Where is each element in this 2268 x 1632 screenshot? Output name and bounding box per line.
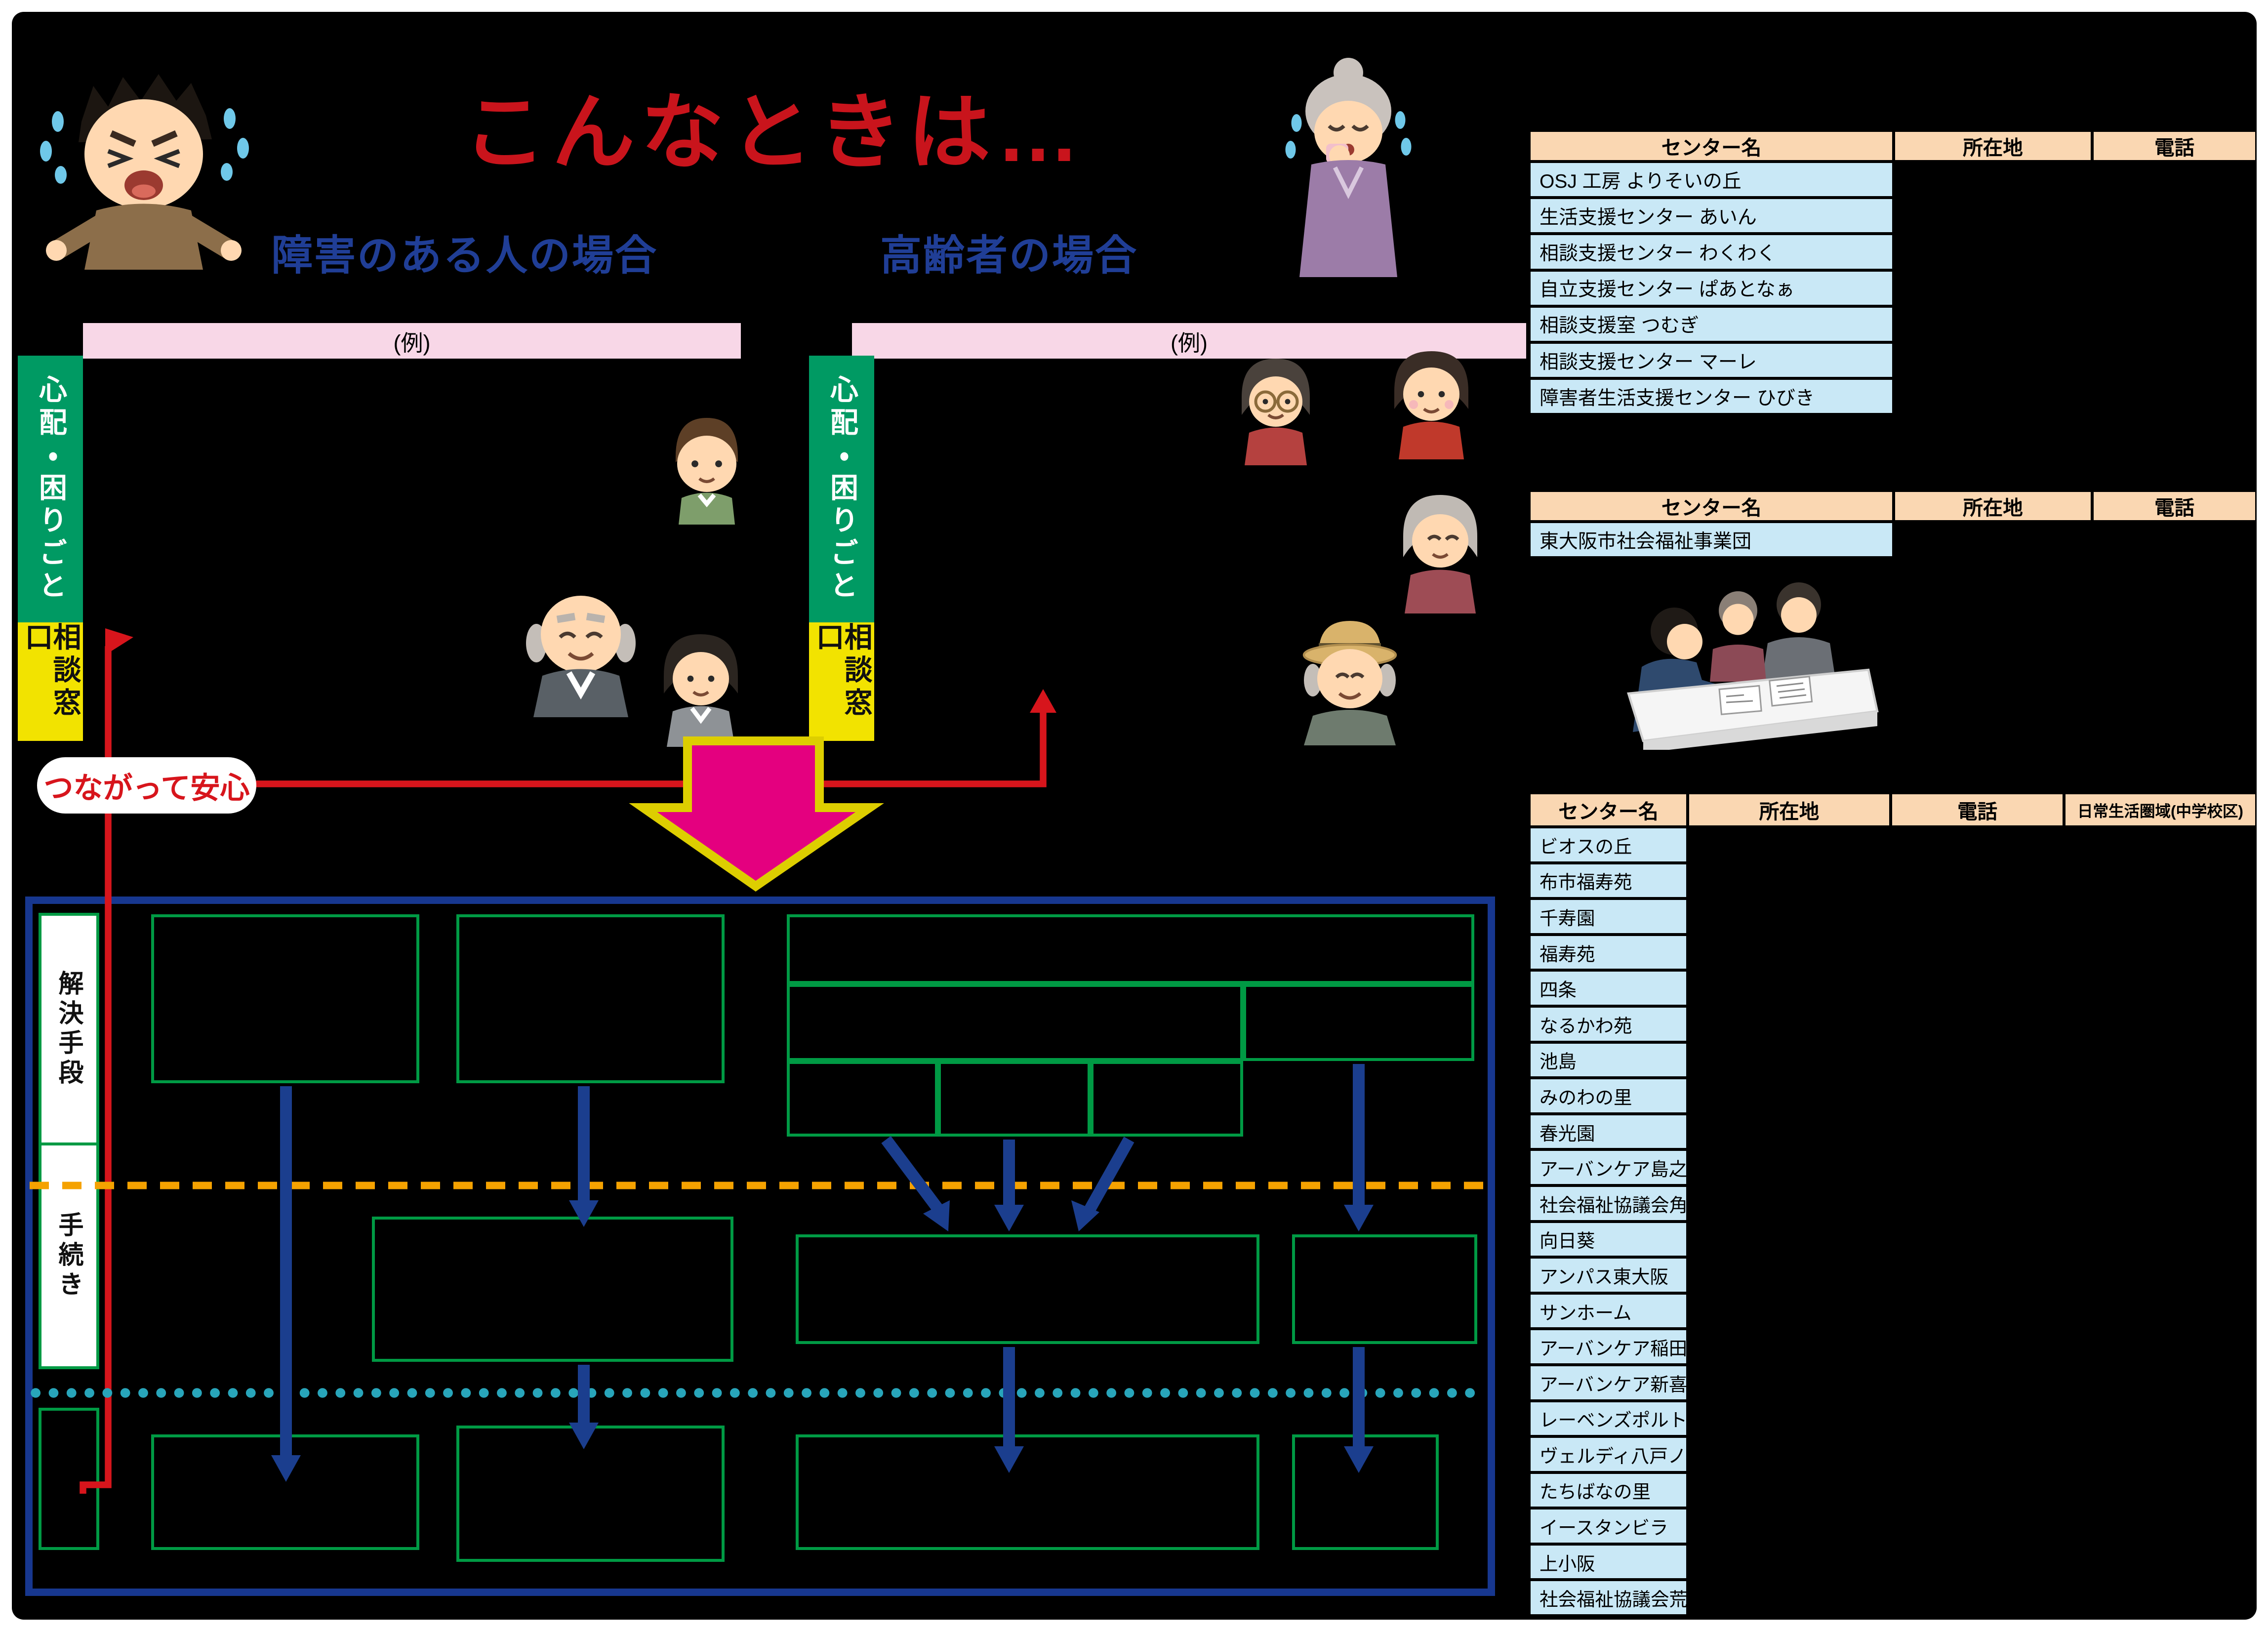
- table-row: サンホーム: [1529, 1293, 2257, 1329]
- table-row: 相談支援センター わくわく: [1529, 234, 2257, 270]
- center-name-cell: アーバンケア新喜多: [1529, 1365, 1688, 1401]
- flow-box-nested-cell-3: [1091, 1061, 1243, 1137]
- worry-bar-disabled: 心配・困りごと: [18, 356, 83, 622]
- table-row: 自立支援センター ぱあとなぁ: [1529, 270, 2257, 306]
- table-row: 相談支援センター マーレ: [1529, 342, 2257, 378]
- column-header: 所在地: [1894, 490, 2092, 522]
- column-header: センター名: [1529, 793, 1688, 827]
- table-row: 生活支援センター あいん: [1529, 198, 2257, 234]
- flow-box-r2b: [796, 1234, 1259, 1344]
- center-name-cell: 相談支援センター マーレ: [1529, 342, 1894, 378]
- center-name-cell: レーベンズポルト: [1529, 1401, 1688, 1437]
- column-header: 日常生活圏域(中学校区): [2064, 793, 2257, 827]
- table-row: なるかわ苑: [1529, 1006, 2257, 1042]
- flow-box-r3b: [456, 1426, 725, 1562]
- table-header-row: センター名所在地電話日常生活圏域(中学校区): [1529, 793, 2257, 827]
- column-header: 所在地: [1894, 130, 2092, 162]
- disability-centers-table: センター名所在地電話OSJ 工房 よりそいの丘生活支援センター あいん相談支援セ…: [1529, 130, 2257, 414]
- hat-elderly-man-illustration: [1292, 612, 1408, 745]
- column-header: 電話: [2092, 490, 2257, 522]
- table-row: 布市福寿苑: [1529, 863, 2257, 899]
- worry-bar-elderly: 心配・困りごと: [809, 356, 874, 622]
- center-name-cell: 千寿園: [1529, 898, 1688, 935]
- table-row: たちばなの里: [1529, 1472, 2257, 1509]
- center-name-cell: 四条: [1529, 970, 1688, 1006]
- flow-box-nested-cell-1: [787, 1061, 938, 1137]
- center-name-cell: 相談支援センター わくわく: [1529, 234, 1894, 270]
- center-name-cell: 障害者生活支援センター ひびき: [1529, 378, 1894, 414]
- column-header: センター名: [1529, 490, 1894, 522]
- table-row: アーバンケア新喜多: [1529, 1365, 2257, 1401]
- center-name-cell: アーバンケア島之内: [1529, 1149, 1688, 1185]
- welfare-organization-table: センター名所在地電話東大阪市社会福祉事業団: [1529, 490, 2257, 558]
- center-name-cell: たちばなの里: [1529, 1472, 1688, 1509]
- table-row: 池島: [1529, 1042, 2257, 1078]
- table-row: 向日葵: [1529, 1222, 2257, 1258]
- center-name-cell: みのわの里: [1529, 1078, 1688, 1114]
- center-name-cell: アンパス東大阪: [1529, 1257, 1688, 1293]
- column-header: センター名: [1529, 130, 1894, 162]
- column-header: 電話: [1891, 793, 2064, 827]
- center-name-cell: 相談支援室 つむぎ: [1529, 306, 1894, 342]
- elderly-centers-table: センター名所在地電話日常生活圏域(中学校区)ビオスの丘布市福寿苑千寿園福寿苑四条…: [1529, 793, 2257, 1616]
- center-name-cell: ヴェルディ八戸ノ里: [1529, 1436, 1688, 1472]
- procedure-label: 手続き: [56, 1212, 81, 1301]
- table-row: みのわの里: [1529, 1078, 2257, 1114]
- flow-box-r1a: [151, 914, 419, 1083]
- center-name-cell: 生活支援センター あいん: [1529, 198, 1894, 234]
- reception-counter-illustration: [1620, 575, 1879, 750]
- flow-box-nested-mid-right: [1243, 984, 1474, 1061]
- flow-box-small-left: [39, 1408, 99, 1550]
- center-name-cell: サンホーム: [1529, 1293, 1688, 1329]
- elderly-woman-illustration: [1390, 483, 1491, 613]
- center-name-cell: ビオスの丘: [1529, 827, 1688, 863]
- counter-window-bar-disabled: 相談窓口: [18, 622, 83, 741]
- table-row: ビオスの丘: [1529, 827, 2257, 863]
- center-name-cell: 福寿苑: [1529, 935, 1688, 971]
- table-row: イースタンビラ: [1529, 1508, 2257, 1544]
- old-man-illustration: [519, 572, 643, 717]
- suit-woman-illustration: [649, 622, 753, 747]
- heading-elderly-case: 高齢者の場合: [880, 222, 1138, 282]
- center-name-cell: 東大阪市社会福祉事業団: [1529, 522, 1894, 558]
- flow-box-nested-cell-2: [938, 1061, 1091, 1137]
- table-row: 相談支援室 つむぎ: [1529, 306, 2257, 342]
- center-name-cell: 向日葵: [1529, 1222, 1688, 1258]
- table-header-row: センター名所在地電話: [1529, 490, 2257, 522]
- table-row: 四条: [1529, 970, 2257, 1006]
- flow-box-r2a: [372, 1217, 733, 1362]
- center-name-cell: 布市福寿苑: [1529, 863, 1688, 899]
- table-row: 福寿苑: [1529, 935, 2257, 971]
- flyer-page: こんなときは… 障害のある人の場合 高齢者の場合 (例) (例) 心配・困りごと…: [0, 0, 2268, 1632]
- table-header-row: センター名所在地電話: [1529, 130, 2257, 162]
- worry-label: 心配・困りごと: [37, 375, 65, 603]
- table-row: ヴェルディ八戸ノ里: [1529, 1436, 2257, 1472]
- table-row: 社会福祉協議会角田: [1529, 1185, 2257, 1222]
- connected-label: つながって安心: [44, 764, 250, 807]
- table-row: アンパス東大阪: [1529, 1257, 2257, 1293]
- kimono: [1299, 160, 1397, 277]
- center-name-cell: 自立支援センター ぱあとなぁ: [1529, 270, 1894, 306]
- center-name-cell: 上小阪: [1529, 1544, 1688, 1580]
- center-name-cell: アーバンケア稲田: [1529, 1329, 1688, 1365]
- flow-box-nested-top: [787, 914, 1474, 984]
- boy-illustration: [664, 409, 750, 525]
- table-row: 上小阪: [1529, 1544, 2257, 1580]
- crying-man-illustration: [37, 44, 252, 289]
- table-row: アーバンケア島之内: [1529, 1149, 2257, 1185]
- center-name-cell: 社会福祉協議会角田: [1529, 1185, 1688, 1222]
- table-row: レーベンズポルト: [1529, 1401, 2257, 1437]
- center-name-cell: 池島: [1529, 1042, 1688, 1078]
- flow-box-r3d: [1292, 1434, 1439, 1550]
- flow-box-r2c: [1292, 1234, 1477, 1344]
- example-label: (例): [394, 325, 431, 357]
- flow-box-nested-mid-left: [787, 984, 1243, 1061]
- flow-box-r3a: [151, 1434, 419, 1550]
- center-name-cell: イースタンビラ: [1529, 1508, 1688, 1544]
- table-row: 障害者生活支援センター ひびき: [1529, 378, 2257, 414]
- example-bar-disabled: (例): [83, 323, 741, 359]
- heading-disabled-case: 障害のある人の場合: [271, 222, 658, 282]
- flow-box-r3c: [796, 1434, 1259, 1550]
- solution-label: 解決手段: [56, 970, 81, 1089]
- table-row: OSJ 工房 よりそいの丘: [1529, 162, 2257, 198]
- counter-window-label: 相談窓口: [22, 622, 79, 741]
- worry-label: 心配・困りごと: [828, 375, 856, 603]
- table-row: 千寿園: [1529, 898, 2257, 935]
- flow-box-r1b: [456, 914, 725, 1083]
- example-label: (例): [1171, 325, 1208, 357]
- center-name-cell: 社会福祉協議会荒川: [1529, 1580, 1688, 1616]
- table-row: 社会福祉協議会荒川: [1529, 1580, 2257, 1616]
- crying-elderly-woman-illustration: [1282, 52, 1415, 289]
- counter-window-label: 相談窓口: [813, 622, 870, 741]
- table-row: 春光園: [1529, 1114, 2257, 1150]
- counter-window-bar-elderly: 相談窓口: [809, 622, 874, 741]
- table-row: アーバンケア稲田: [1529, 1329, 2257, 1365]
- connected-relief-pill: つながって安心: [37, 757, 256, 814]
- flow-label-box: 解決手段 手続き: [39, 913, 99, 1369]
- center-name-cell: 春光園: [1529, 1114, 1688, 1150]
- column-header: 電話: [2092, 130, 2257, 162]
- sweater: [84, 204, 203, 270]
- page-title: こんなときは…: [370, 65, 1178, 185]
- column-header: 所在地: [1688, 793, 1891, 827]
- glasses-woman-illustration: [1230, 350, 1322, 465]
- center-name-cell: なるかわ苑: [1529, 1006, 1688, 1042]
- center-name-cell: OSJ 工房 よりそいの丘: [1529, 162, 1894, 198]
- red-top-woman-illustration: [1381, 341, 1482, 459]
- table-row: 東大阪市社会福祉事業団: [1529, 522, 2257, 558]
